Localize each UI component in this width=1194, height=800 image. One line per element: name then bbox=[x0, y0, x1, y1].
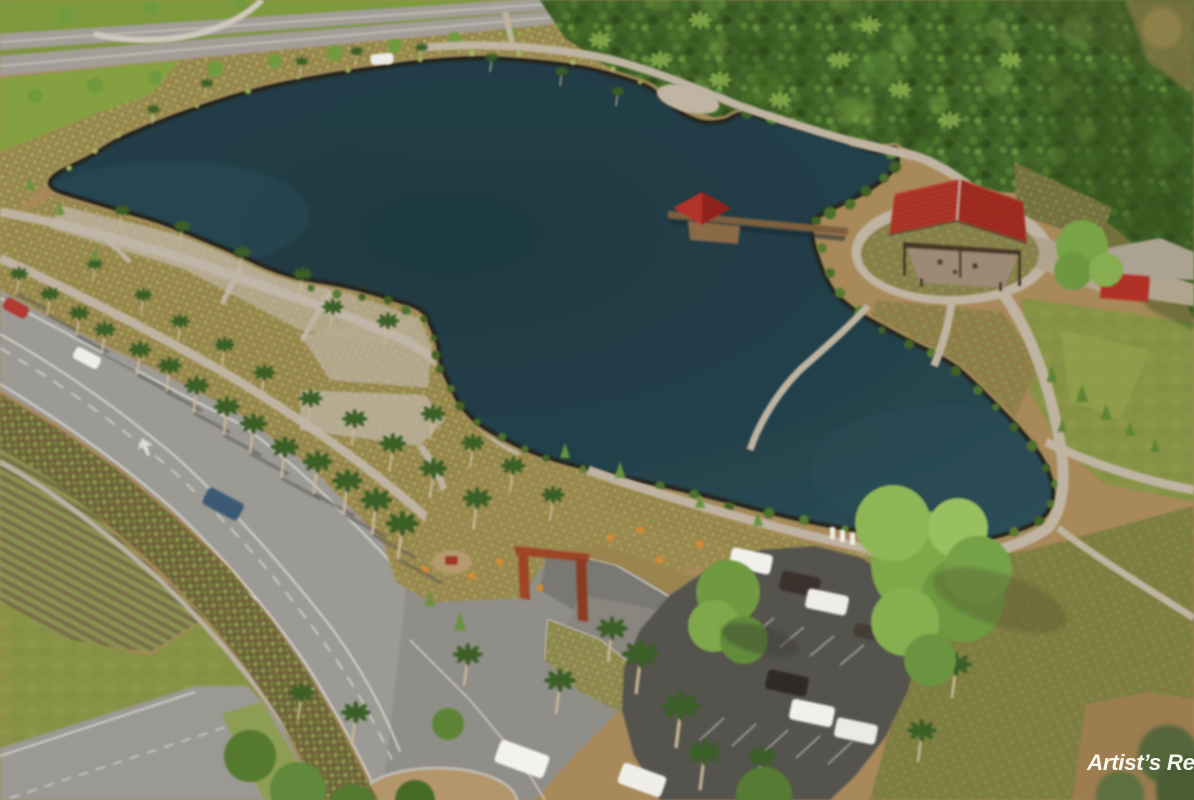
svg-text:Artist’s Rendering: Artist’s Rendering bbox=[1086, 750, 1194, 775]
